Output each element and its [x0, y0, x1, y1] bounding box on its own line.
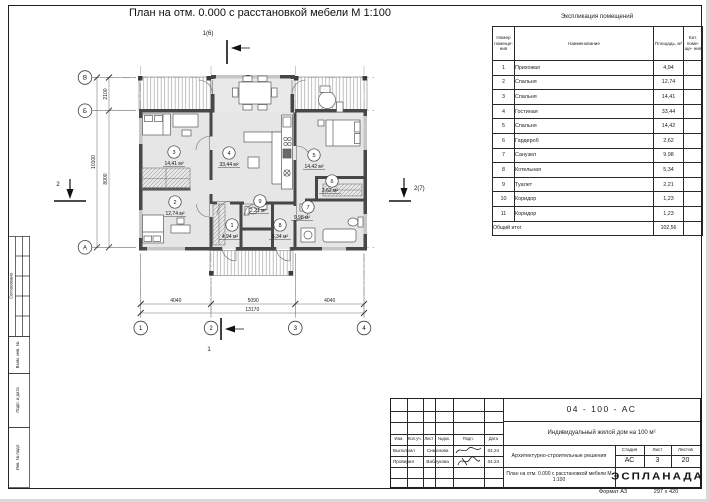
tb-project: Индивидуальный жилой дом на 100 м² [503, 421, 700, 445]
signature-0 [453, 445, 483, 456]
format-label: Формат А3 [583, 489, 643, 495]
tb-role-0: Выполнил [391, 445, 423, 456]
stamp-podp-data: Подп. и дата [15, 387, 20, 413]
explication-row: 11Коридор1,23 [493, 206, 703, 221]
dimension-labels-bottom: 4040 5090 4040 13170 [170, 298, 335, 313]
explication-title: Экспликация помещений [492, 13, 702, 20]
explication-table: Номер помеще- ния Наименование Площадь, … [492, 26, 702, 236]
svg-text:33,44 м²: 33,44 м² [219, 162, 238, 168]
svg-text:4: 4 [227, 151, 230, 157]
drawing-sheet: План на отм. 0.000 с расстановкой мебели… [0, 0, 706, 499]
col-header-area: Площадь, м² [654, 27, 684, 61]
explication-header-row: Номер помеще- ния Наименование Площадь, … [493, 27, 703, 61]
tb-date-1: 04.24 [484, 456, 503, 467]
svg-text:12,74 м²: 12,74 м² [165, 211, 184, 217]
svg-text:9: 9 [258, 199, 261, 205]
section-mark-top: 1(6) [203, 31, 250, 64]
tb-stage-label: Стадия [615, 445, 644, 455]
svg-text:4,94 м²: 4,94 м² [222, 234, 239, 240]
signature-1 [453, 456, 483, 467]
svg-text:1: 1 [207, 347, 211, 353]
explication-total-row: Общий итог102,56 [493, 221, 703, 236]
tb-col-data: Дата [484, 434, 503, 445]
svg-text:А: А [83, 246, 87, 252]
tb-sheets-value: 20 [671, 455, 700, 467]
explication-row: 7Санузел9,98 [493, 148, 703, 163]
explication-row: 10Коридор1,23 [493, 192, 703, 207]
tb-col-podp: Подп. [453, 434, 484, 445]
svg-text:13170: 13170 [245, 307, 259, 313]
tb-col-list: Лист [423, 434, 436, 445]
tb-col-ndok: №док. [435, 434, 452, 445]
tb-role-1: Проверил [391, 456, 423, 467]
tb-stage-value: АС [615, 455, 644, 467]
svg-text:8000: 8000 [103, 173, 109, 184]
tb-sheet-label: Лист [644, 445, 671, 455]
tb-drawing-title: План на отм. 0.000 с расстановкой мебели… [505, 467, 613, 489]
tb-section: Архитектурно-строительные решения [505, 445, 613, 467]
svg-text:2: 2 [173, 200, 176, 206]
section-mark-right: 2(7) [389, 178, 425, 201]
tb-col-koluch: Кол.уч. [407, 434, 423, 445]
col-header-category: Кат. поме- ще- ния [684, 27, 703, 61]
explication-row: 4Гостиная33,44 [493, 104, 703, 119]
svg-text:В: В [83, 76, 87, 82]
svg-text:10100: 10100 [91, 155, 97, 169]
svg-text:2100: 2100 [103, 88, 109, 99]
explication-row: 1Прихожая4,94 [493, 61, 703, 76]
left-margin-stamps: Согласовано Взам. инв. № Подп. и дата Ин… [8, 236, 30, 488]
tb-name-0: Симонова [423, 445, 453, 456]
svg-text:5: 5 [312, 153, 315, 159]
explication-row: 3Спальня14,41 [493, 90, 703, 105]
svg-text:2,62 м²: 2,62 м² [322, 188, 339, 194]
svg-text:14,42 м²: 14,42 м² [304, 164, 323, 170]
stamp-soglasovano: Согласовано [9, 272, 14, 298]
title-block: Изм. Кол.уч. Лист №док. Подп. Дата Выпол… [390, 398, 701, 488]
svg-text:1: 1 [230, 223, 233, 229]
svg-text:9,98 м²: 9,98 м² [294, 215, 311, 221]
svg-text:8: 8 [278, 223, 281, 229]
svg-text:1(6): 1(6) [203, 31, 214, 37]
format-size: 297 х 420 [636, 489, 696, 495]
section-mark-left: 2 [54, 179, 86, 201]
svg-text:4040: 4040 [324, 298, 335, 304]
tb-sheet-value: 3 [644, 455, 671, 467]
col-header-number: Номер помеще- ния [493, 27, 515, 61]
explication-row: 9Туалет2,21 [493, 177, 703, 192]
svg-text:6: 6 [330, 179, 333, 185]
explication-row: 5Спальня14,42 [493, 119, 703, 134]
company-logo: ЭСПЛАНАДА [615, 467, 700, 489]
tb-col-izm: Изм. [391, 434, 407, 445]
stamp-inv-podl: Инв. № подл. [15, 444, 20, 471]
tb-doc-number: 04 - 100 - АС [503, 399, 700, 421]
dimension-labels-left: 2100 8000 10100 [91, 88, 109, 184]
svg-text:5,34 м²: 5,34 м² [272, 234, 289, 240]
svg-text:14,41 м²: 14,41 м² [164, 161, 183, 167]
stamp-vzam-inv: Взам. инв. № [15, 341, 20, 368]
tb-date-0: 04.24 [484, 445, 503, 456]
tb-name-1: Ваблукова [423, 456, 453, 467]
svg-text:2(7): 2(7) [414, 186, 425, 192]
company-logo-text: ЭСПЛАНАДА [611, 472, 704, 483]
svg-text:4040: 4040 [170, 298, 181, 304]
floor-plan: 4040 5090 4040 13170 2100 8000 10100 [30, 18, 460, 354]
svg-text:5090: 5090 [248, 298, 259, 304]
svg-text:Б: Б [83, 109, 87, 115]
explication-row: 6Гардероб2,62 [493, 133, 703, 148]
svg-text:7: 7 [306, 205, 309, 211]
svg-text:2,21 м²: 2,21 м² [250, 208, 267, 214]
svg-text:3: 3 [172, 150, 175, 156]
col-header-name: Наименование [515, 27, 654, 61]
dimensions-left [93, 75, 136, 251]
explication-row: 8Котельная5,34 [493, 163, 703, 178]
explication-row: 2Спальня12,74 [493, 75, 703, 90]
tb-sheets-label: Листов [671, 445, 700, 455]
svg-text:2: 2 [56, 182, 60, 188]
